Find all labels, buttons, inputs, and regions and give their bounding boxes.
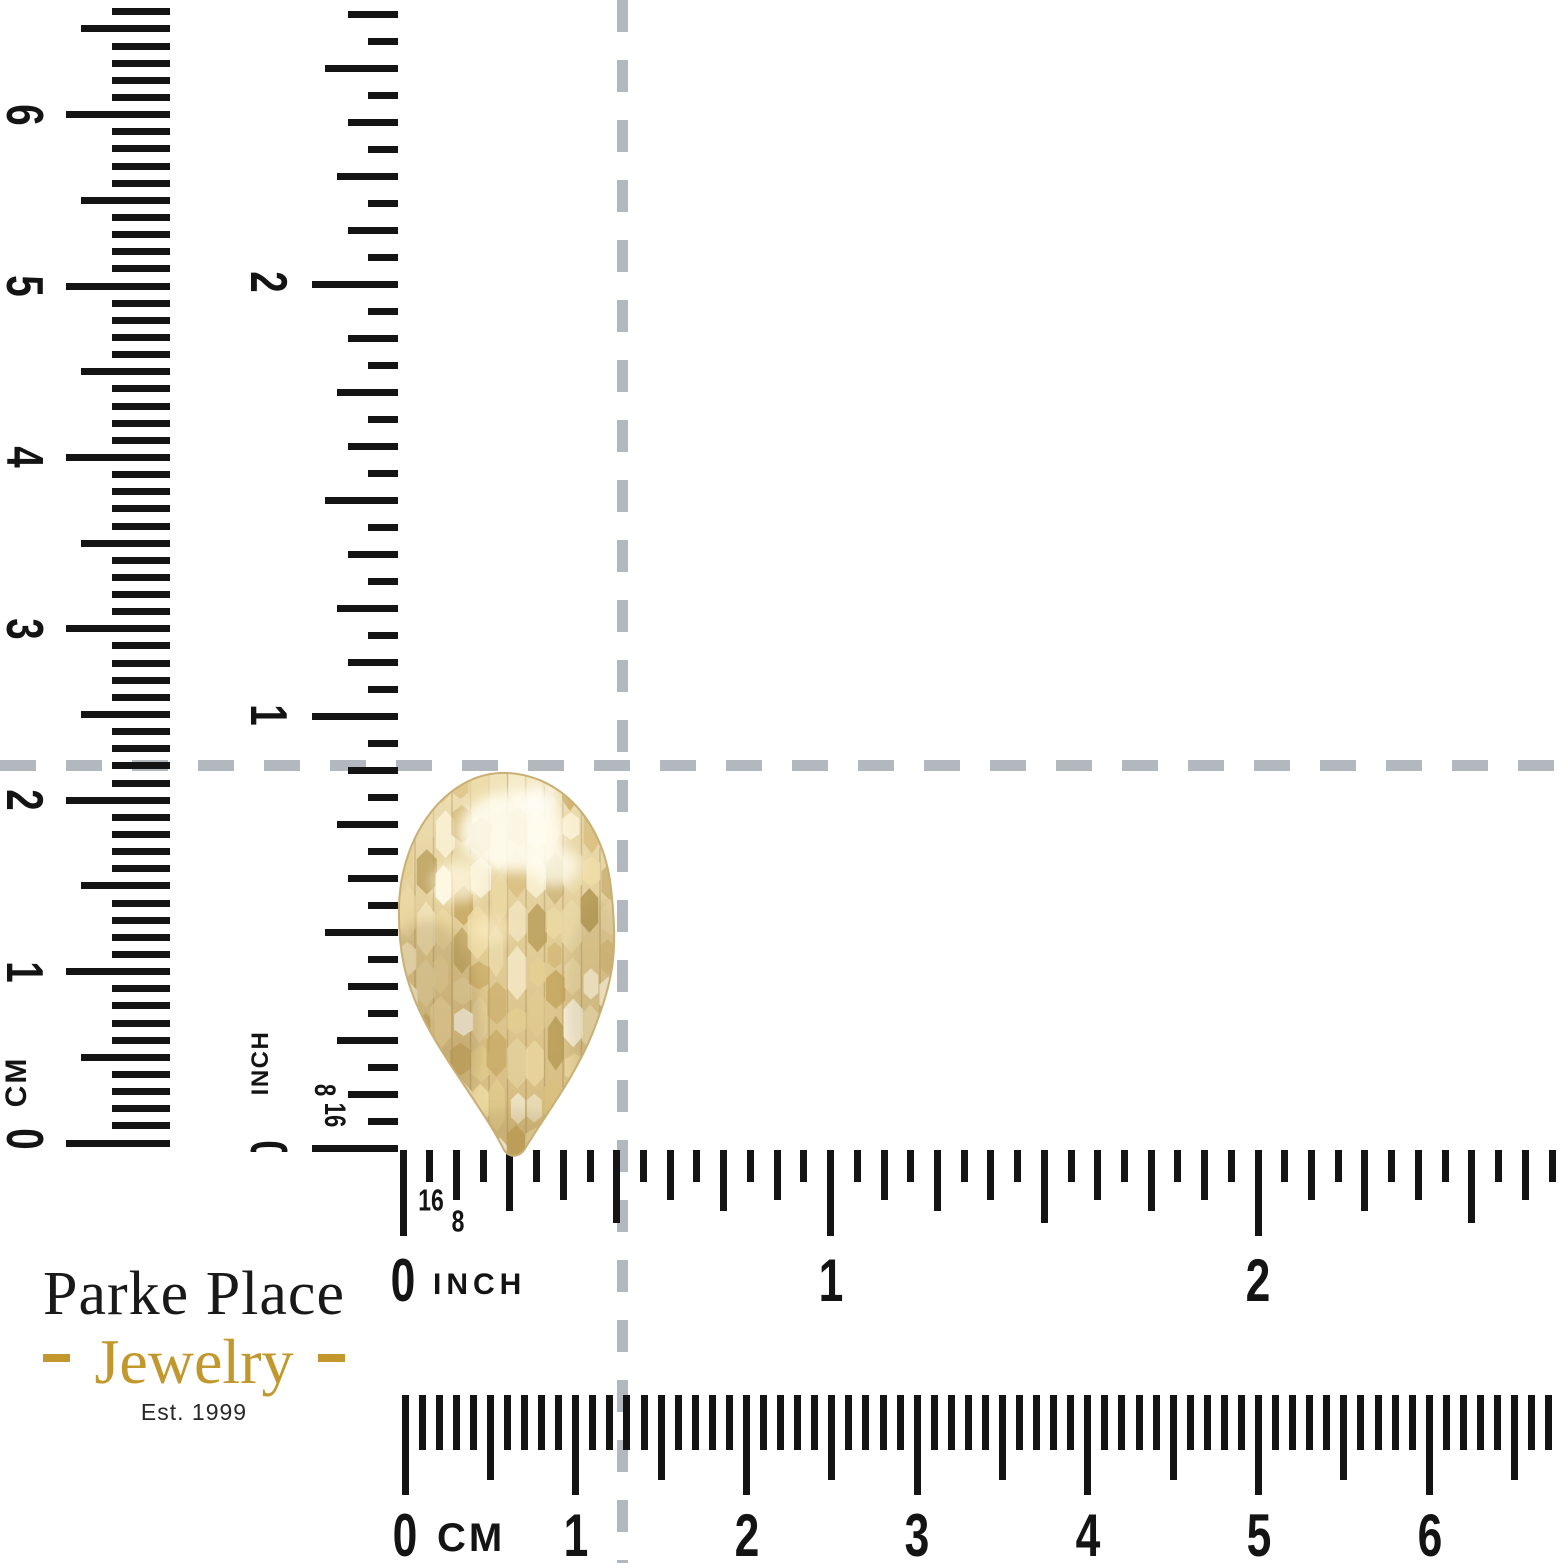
cm-ruler-tick [112, 814, 170, 821]
inch-ruler-tick [348, 551, 398, 558]
cm-ruler-tick [521, 1395, 528, 1450]
cm-ruler-tick [112, 214, 170, 221]
inch-ruler-tick [907, 1150, 914, 1182]
cm-ruler-tick [112, 985, 170, 992]
cm-ruler-tick [112, 848, 170, 855]
cm-ruler-tick [777, 1395, 784, 1450]
cm-ruler-tick [112, 403, 170, 410]
inch-ruler-tick [337, 821, 398, 828]
cm-ruler-tick [402, 1395, 409, 1495]
cm-ruler-tick [112, 94, 170, 101]
cm-ruler-tick [112, 762, 170, 769]
inch-ruler-tick [1174, 1150, 1181, 1182]
brand-established: Est. 1999 [14, 1399, 374, 1426]
cm-ruler-tick [112, 900, 170, 907]
cm-ruler-tick [999, 1395, 1006, 1480]
inch-ruler-number-2: 2 [242, 271, 294, 292]
cm-ruler-tick [658, 1395, 665, 1480]
cm-ruler-tick [112, 163, 170, 170]
cm-ruler-tick [538, 1395, 545, 1450]
cm-ruler-tick [112, 248, 170, 255]
inch-ruler-tick [747, 1150, 754, 1182]
inch-ruler-tick [1335, 1150, 1342, 1182]
inch-ruler-tick [312, 1145, 398, 1152]
inch-ruler-tick [368, 308, 398, 315]
inch-ruler-tick [1388, 1150, 1395, 1182]
inch-ruler-tick [368, 794, 398, 801]
cm-ruler-tick [1050, 1395, 1057, 1450]
inch-ruler-tick [368, 362, 398, 369]
cm-ruler-tick [504, 1395, 511, 1450]
inch-ruler-tick [1014, 1150, 1021, 1182]
cm-ruler-tick [1101, 1395, 1108, 1450]
inch-ruler-tick [774, 1150, 781, 1200]
inch-ruler-tick [325, 929, 398, 936]
inch-ruler-tick [368, 92, 398, 99]
inch-ruler-number-1: 1 [242, 704, 294, 725]
cm-ruler-tick [1323, 1395, 1330, 1450]
cm-ruler-tick [81, 368, 170, 375]
cm-ruler-tick [112, 574, 170, 581]
cm-ruler-number-4: 4 [0, 447, 50, 468]
cm-ruler-tick [1153, 1395, 1160, 1450]
brand-jewelry: Jewelry [94, 1328, 293, 1395]
inch-ruler-tick [881, 1150, 888, 1200]
cm-ruler-tick [112, 780, 170, 787]
cm-ruler-number-4: 4 [1076, 1506, 1101, 1563]
cm-ruler-tick [112, 660, 170, 667]
cm-ruler-tick [112, 1088, 170, 1095]
inch-ruler-tick [368, 956, 398, 963]
cm-ruler-tick [419, 1395, 426, 1450]
cm-ruler-tick [1340, 1395, 1347, 1480]
cm-ruler-tick [112, 951, 170, 958]
cm-ruler-tick [112, 557, 170, 564]
cm-ruler-tick [112, 128, 170, 135]
cm-ruler-tick [81, 882, 170, 889]
inch-ruler-tick [854, 1150, 861, 1182]
cm-ruler-tick [1016, 1395, 1023, 1450]
cm-ruler-tick [606, 1395, 613, 1450]
cm-ruler-tick [1409, 1395, 1416, 1450]
cm-ruler-tick [1084, 1395, 1091, 1495]
cm-ruler-tick [1375, 1395, 1382, 1450]
inch-ruler-number-2: 2 [1246, 1251, 1271, 1311]
cm-ruler-number-5: 5 [0, 275, 50, 296]
inch-ruler-tick [1201, 1150, 1208, 1200]
cm-ruler-tick [66, 283, 170, 290]
cm-ruler-number-1: 1 [0, 961, 50, 982]
inch-ruler-tick [1442, 1150, 1449, 1182]
cm-ruler-tick [743, 1395, 750, 1495]
cm-ruler-tick [555, 1395, 562, 1450]
cm-ruler-tick [675, 1395, 682, 1450]
inch-ruler-tick [667, 1150, 674, 1200]
cm-ruler-tick [794, 1395, 801, 1450]
cm-ruler-tick [112, 385, 170, 392]
cm-ruler-tick [880, 1395, 887, 1450]
cm-ruler-tick [81, 197, 170, 204]
cm-ruler-tick [726, 1395, 733, 1450]
inch-ruler-tick [368, 1064, 398, 1071]
inch-ruler-tick [368, 632, 398, 639]
cm-ruler-tick [845, 1395, 852, 1450]
inch-ruler-tick [368, 686, 398, 693]
cm-ruler-tick [112, 420, 170, 427]
inch-ruler-tick [1148, 1150, 1155, 1211]
inch-ruler-number-0: 0 [242, 1140, 294, 1152]
cm-ruler-tick [112, 694, 170, 701]
inch-ruler-tick [368, 470, 398, 477]
inch-ruler-fraction-8: 8 [452, 1206, 465, 1237]
inch-ruler-number-1: 1 [818, 1251, 843, 1311]
cm-ruler-tick [66, 797, 170, 804]
cm-ruler-tick [112, 77, 170, 84]
cm-ruler-tick [948, 1395, 955, 1450]
cm-ruler-number-3: 3 [0, 618, 50, 639]
cm-ruler-tick [112, 1002, 170, 1009]
cm-ruler-tick [112, 505, 170, 512]
inch-ruler-tick [1121, 1150, 1128, 1182]
inch-ruler-tick [800, 1150, 807, 1182]
cm-ruler-tick [931, 1395, 938, 1450]
cm-ruler-tick [1238, 1395, 1245, 1450]
inch-ruler-tick [368, 1118, 398, 1125]
inch-ruler-tick [312, 713, 398, 720]
cm-ruler-number-1: 1 [563, 1506, 588, 1563]
inch-ruler-tick [961, 1150, 968, 1182]
cm-ruler-tick [811, 1395, 818, 1450]
inch-ruler-tick [1308, 1150, 1315, 1200]
inch-ruler-fraction-16: 16 [319, 1103, 349, 1128]
cm-ruler-tick [112, 1122, 170, 1129]
inch-ruler-fraction-16: 16 [418, 1185, 444, 1216]
cm-ruler-tick [436, 1395, 443, 1450]
cm-ruler-tick [66, 111, 170, 118]
cm-ruler-tick [81, 1054, 170, 1061]
cm-ruler-tick [112, 642, 170, 649]
cm-ruler-tick [81, 540, 170, 547]
inch-ruler-tick [337, 605, 398, 612]
cm-ruler-tick [112, 488, 170, 495]
inch-ruler-tick [325, 497, 398, 504]
inch-ruler-unit-label: INCH [433, 1270, 526, 1300]
inch-ruler-tick [348, 875, 398, 882]
cm-ruler-tick [112, 934, 170, 941]
brand-jewelry-row: Jewelry [14, 1328, 374, 1395]
cm-ruler-tick [112, 334, 170, 341]
cm-ruler-tick [112, 8, 170, 15]
cm-ruler-tick [1545, 1395, 1552, 1450]
cm-ruler-tick [760, 1395, 767, 1450]
logo-dash-left [43, 1354, 70, 1362]
product-photo-canvas: 0123456CM012816INCH 012168INCH0123456CM … [0, 0, 1563, 1563]
cm-ruler-number-0: 0 [0, 1128, 50, 1149]
cm-ruler-tick [112, 591, 170, 598]
inch-ruler-tick [325, 65, 398, 72]
cm-ruler-tick [1204, 1395, 1211, 1450]
gold-pear-earring-photo [396, 770, 620, 1162]
inch-ruler-tick [640, 1150, 647, 1182]
cm-ruler-tick [81, 711, 170, 718]
inch-ruler-tick [1361, 1150, 1368, 1211]
inch-ruler-tick [987, 1150, 994, 1200]
inch-ruler-tick [368, 524, 398, 531]
cm-ruler-number-6: 6 [1417, 1506, 1442, 1563]
cm-ruler-tick [1067, 1395, 1074, 1450]
inch-ruler-tick [1068, 1150, 1075, 1182]
inch-ruler-tick [368, 254, 398, 261]
cm-ruler-tick [914, 1395, 921, 1495]
inch-ruler-tick [337, 1037, 398, 1044]
cm-ruler-tick [470, 1395, 477, 1450]
inch-ruler-tick [368, 38, 398, 45]
cm-ruler-tick [982, 1395, 989, 1450]
cm-ruler-tick [112, 608, 170, 615]
cm-ruler-unit-label: CM [437, 1518, 505, 1558]
inch-ruler-tick [1041, 1150, 1048, 1223]
cm-ruler-tick [112, 180, 170, 187]
cm-ruler-tick [112, 231, 170, 238]
inch-ruler-tick [368, 1010, 398, 1017]
cm-ruler-tick [1136, 1395, 1143, 1450]
cm-ruler-tick [487, 1395, 494, 1480]
cm-ruler-tick [1443, 1395, 1450, 1450]
inch-ruler-tick [348, 1091, 398, 1098]
cm-ruler-tick [112, 865, 170, 872]
inch-ruler-tick [1549, 1150, 1556, 1182]
cm-ruler-number-6: 6 [0, 104, 50, 125]
inch-ruler-tick [693, 1150, 700, 1182]
cm-ruler-tick [1426, 1395, 1433, 1495]
inch-ruler-tick [827, 1150, 834, 1236]
inch-ruler-tick [348, 659, 398, 666]
cm-ruler-tick [1033, 1395, 1040, 1450]
cm-ruler-tick [112, 437, 170, 444]
inch-ruler-tick [1255, 1150, 1262, 1236]
inch-ruler-tick [348, 443, 398, 450]
cm-ruler-tick [453, 1395, 460, 1450]
inch-ruler-tick [934, 1150, 941, 1211]
cm-ruler-tick [1460, 1395, 1467, 1450]
cm-ruler-number-2: 2 [734, 1506, 759, 1563]
cm-ruler-tick [112, 728, 170, 735]
inch-ruler-tick [368, 578, 398, 585]
cm-ruler-tick [112, 831, 170, 838]
cm-ruler-tick [1477, 1395, 1484, 1450]
inch-ruler-tick [348, 335, 398, 342]
cm-ruler-tick [66, 1140, 170, 1147]
inch-ruler-tick [1094, 1150, 1101, 1200]
cm-ruler-tick [112, 1037, 170, 1044]
cm-ruler-tick [112, 677, 170, 684]
cm-ruler-tick [572, 1395, 579, 1495]
inch-ruler-tick [368, 902, 398, 909]
cm-ruler-tick [589, 1395, 596, 1450]
cm-ruler-number-0: 0 [393, 1506, 418, 1563]
cm-ruler-tick [862, 1395, 869, 1450]
inch-ruler-tick [337, 173, 398, 180]
cm-ruler-tick [112, 1071, 170, 1078]
cm-ruler-tick [1170, 1395, 1177, 1480]
inch-ruler-tick [368, 416, 398, 423]
inch-ruler-unit-label: INCH [249, 1031, 273, 1096]
cm-ruler-tick [965, 1395, 972, 1450]
vertical-rulers: 0123456CM012816INCH [0, 0, 430, 1152]
cm-ruler-tick [1357, 1395, 1364, 1450]
inch-ruler-tick [348, 227, 398, 234]
cm-ruler-tick [112, 43, 170, 50]
inch-ruler-tick [1281, 1150, 1288, 1182]
brand-logo: Parke Place Jewelry Est. 1999 [14, 1260, 374, 1426]
cm-ruler-tick [897, 1395, 904, 1450]
inch-ruler-tick [1522, 1150, 1529, 1200]
cm-ruler-tick [709, 1395, 716, 1450]
inch-ruler-tick [720, 1150, 727, 1211]
inch-ruler-tick [312, 281, 398, 288]
inch-ruler-tick [348, 983, 398, 990]
cm-ruler-tick [1221, 1395, 1228, 1450]
inch-ruler-tick [1415, 1150, 1422, 1200]
inch-ruler-tick [1468, 1150, 1475, 1223]
inch-ruler-tick [368, 200, 398, 207]
cm-ruler-tick [1118, 1395, 1125, 1450]
inch-ruler-tick [368, 740, 398, 747]
inch-ruler-number-0: 0 [391, 1251, 416, 1311]
cm-ruler-tick [112, 300, 170, 307]
cm-ruler-number-5: 5 [1247, 1506, 1272, 1563]
logo-dash-right [318, 1354, 345, 1362]
cm-ruler-tick [1187, 1395, 1194, 1450]
cm-ruler-tick [112, 1020, 170, 1027]
cm-ruler-tick [112, 317, 170, 324]
cm-ruler-tick [1511, 1395, 1518, 1480]
inch-ruler-tick [368, 146, 398, 153]
cm-ruler-tick [66, 968, 170, 975]
inch-ruler-tick [348, 11, 398, 18]
inch-ruler-tick [1228, 1150, 1235, 1182]
cm-ruler-tick [66, 454, 170, 461]
cm-ruler-tick [1255, 1395, 1262, 1495]
inch-ruler-tick [1495, 1150, 1502, 1182]
cm-ruler-tick [66, 625, 170, 632]
cm-ruler-tick [828, 1395, 835, 1480]
cm-ruler-tick [692, 1395, 699, 1450]
cm-ruler-tick [112, 145, 170, 152]
inch-ruler-tick [400, 1150, 407, 1236]
cm-ruler-tick [1392, 1395, 1399, 1450]
cm-ruler-number-3: 3 [905, 1506, 930, 1563]
inch-ruler-tick [348, 767, 398, 774]
cm-ruler-tick [112, 523, 170, 530]
cm-ruler-tick [1528, 1395, 1535, 1450]
cm-ruler-tick [1272, 1395, 1279, 1450]
cm-ruler-tick [112, 917, 170, 924]
cm-ruler-tick [1306, 1395, 1313, 1450]
brand-name: Parke Place [14, 1260, 374, 1328]
cm-ruler-tick [112, 1105, 170, 1112]
cm-ruler-tick [1494, 1395, 1501, 1450]
cm-ruler-tick [641, 1395, 648, 1450]
inch-ruler-tick [368, 848, 398, 855]
cm-ruler-tick [112, 471, 170, 478]
cm-ruler-tick [112, 60, 170, 67]
inch-ruler-fraction-8: 8 [309, 1084, 339, 1096]
cm-ruler-tick [112, 745, 170, 752]
cm-ruler-tick [1289, 1395, 1296, 1450]
inch-ruler-tick [337, 389, 398, 396]
cm-ruler-unit-label: CM [2, 1057, 32, 1108]
inch-ruler-tick [348, 119, 398, 126]
cm-ruler-number-2: 2 [0, 789, 50, 810]
cm-ruler-tick [81, 25, 170, 32]
cm-ruler-tick [112, 351, 170, 358]
cm-ruler-tick [112, 265, 170, 272]
